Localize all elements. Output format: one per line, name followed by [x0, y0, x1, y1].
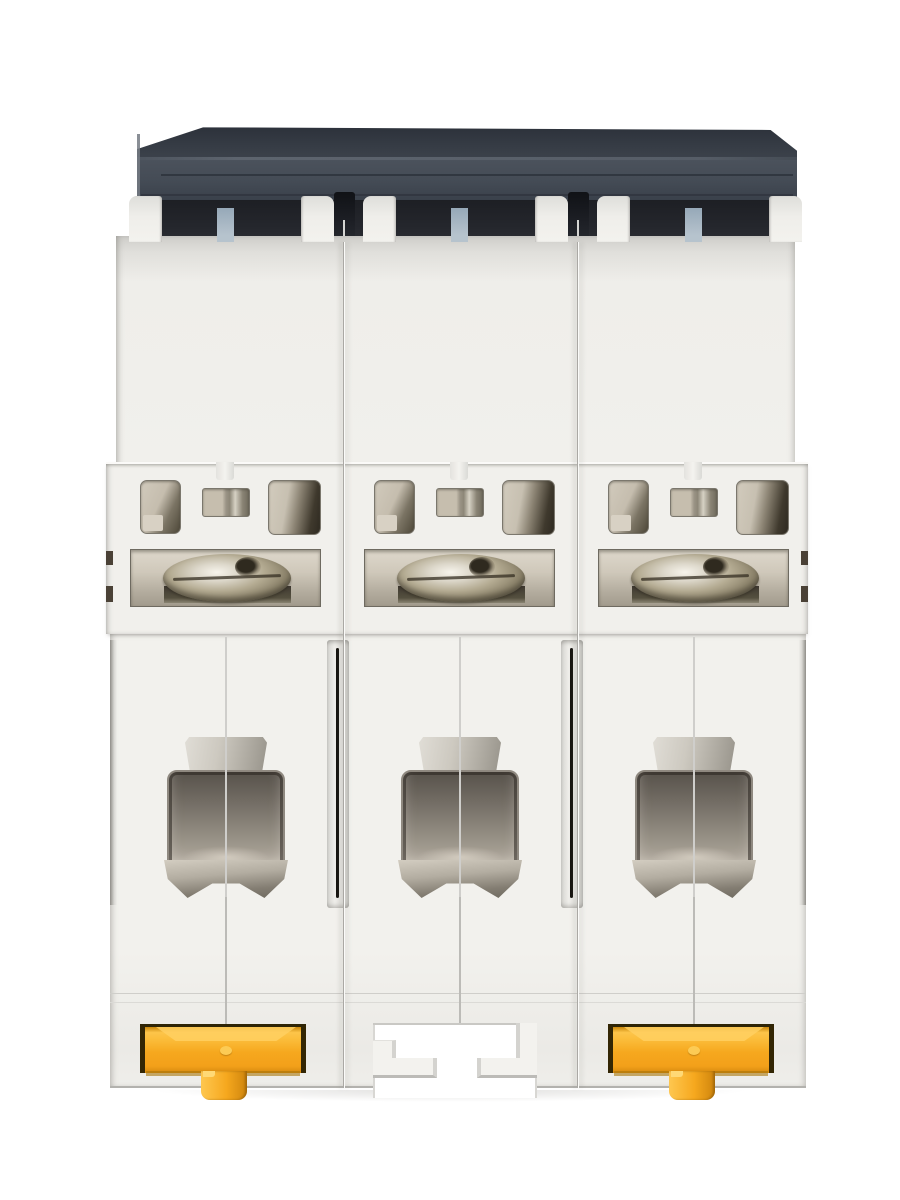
- din-clip-bevel: [624, 1027, 764, 1041]
- screw-drive-recess: [703, 557, 729, 577]
- din-clip-bevel: [156, 1027, 296, 1041]
- vent-opening-right: [268, 480, 321, 535]
- module-pole-1: [109, 0, 343, 1200]
- vent-opening-left: [374, 480, 415, 534]
- white-corner-tab: [597, 196, 630, 242]
- mold-line: [225, 637, 227, 1024]
- vent-opening-left: [140, 480, 181, 534]
- din-clip-dot: [688, 1046, 700, 1055]
- din-hook-left-foot: [373, 1058, 437, 1078]
- vent-opening-center: [202, 488, 250, 517]
- vent-notch: [684, 462, 702, 480]
- terminal-screw: [397, 554, 525, 602]
- blue-latch-tab: [451, 208, 468, 242]
- terminal-screw: [631, 554, 759, 602]
- terminal-screw: [163, 554, 291, 602]
- vent-notch: [450, 462, 468, 480]
- white-corner-tab: [363, 196, 396, 242]
- white-corner-tab: [535, 196, 568, 242]
- screw-window: [364, 549, 555, 607]
- pole-seam: [343, 242, 345, 1088]
- din-clip-dot: [220, 1046, 232, 1055]
- screw-drive-recess: [469, 557, 495, 577]
- screw-window: [598, 549, 789, 607]
- white-corner-tab: [301, 196, 334, 242]
- vent-opening-center: [670, 488, 718, 517]
- module-pole-3: [577, 0, 811, 1200]
- screw-drive-recess: [235, 557, 261, 577]
- breaker-photo: [0, 0, 900, 1200]
- din-clip-pull-tab: [669, 1071, 715, 1100]
- pole-seam: [577, 242, 579, 1088]
- din-hook-right-foot: [477, 1058, 537, 1078]
- mold-line: [459, 637, 461, 1024]
- blue-latch-tab: [685, 208, 702, 242]
- vent-opening-center: [436, 488, 484, 517]
- vent-opening-right: [502, 480, 555, 535]
- white-corner-tab: [129, 196, 162, 242]
- white-corner-tab: [769, 196, 802, 242]
- vent-opening-left: [608, 480, 649, 534]
- module-pole-2: [343, 0, 577, 1200]
- vent-opening-right: [736, 480, 789, 535]
- mold-line: [693, 637, 695, 1024]
- screw-window: [130, 549, 321, 607]
- din-clip-pull-tab: [201, 1071, 247, 1100]
- blue-latch-tab: [217, 208, 234, 242]
- vent-notch: [216, 462, 234, 480]
